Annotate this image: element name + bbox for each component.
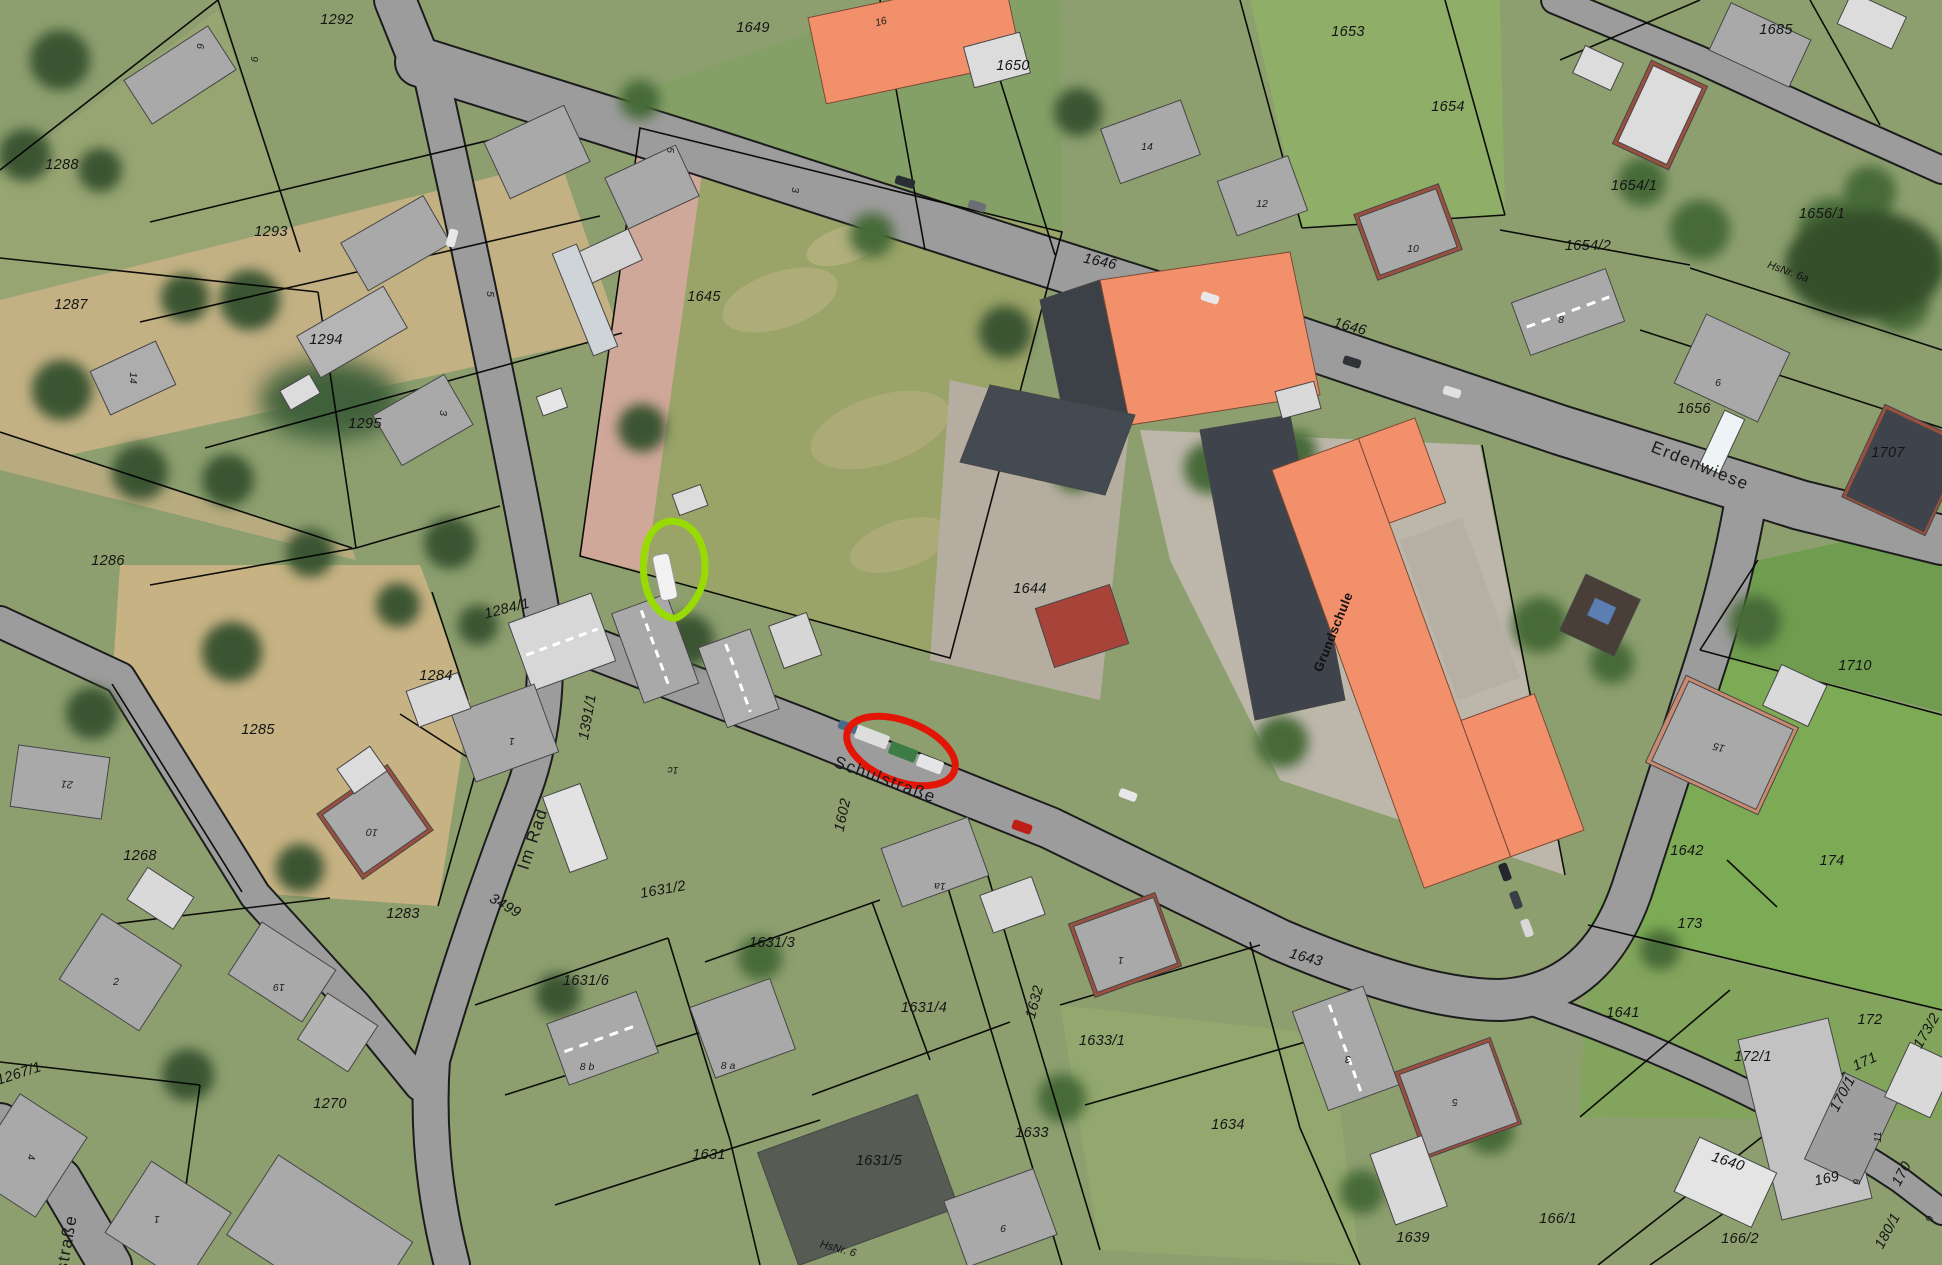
basemap-canvas xyxy=(0,0,1942,1265)
aerial-map[interactable]: 12921649165016531685165412881654/1129312… xyxy=(0,0,1942,1265)
